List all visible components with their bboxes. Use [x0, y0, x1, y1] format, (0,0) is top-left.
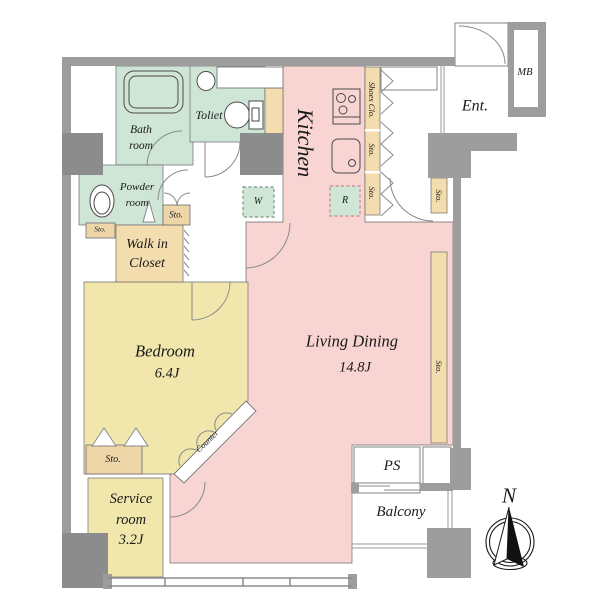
strip-divider	[365, 129, 380, 132]
wall-balcony-top	[420, 483, 453, 491]
bath-room-label: Bath room	[129, 122, 153, 154]
toilet-bowl-fixture	[225, 102, 250, 128]
living-dining-label: Living Dining	[306, 331, 398, 350]
storage-label: Sto.	[367, 144, 377, 157]
bedroom-label: Bedroom	[135, 341, 195, 360]
wall-entrance-step-2	[428, 151, 471, 178]
strip-divider	[365, 171, 380, 174]
shoes-closet-label: Shoes Clo.	[367, 82, 377, 118]
living-door-arc-east	[390, 178, 433, 221]
toilet-side-closet-strip	[265, 88, 283, 135]
compass-needle-light	[494, 507, 509, 565]
compass-needle-dark	[507, 507, 524, 567]
meter-box-label: MB	[517, 67, 532, 79]
pillar-left	[62, 133, 103, 175]
balcony-sliding-door	[352, 483, 420, 493]
compass	[486, 507, 534, 570]
storage-accordion	[381, 172, 393, 216]
service-room-label: Service room 3.2J	[110, 489, 153, 551]
floor-plan: Bath room Toliet Kitchen Shoes Clo. Sto.…	[0, 0, 600, 600]
storage-label: Sto.	[105, 454, 120, 466]
storage-label: Sto.	[434, 361, 444, 374]
powder-sink-fixture	[90, 185, 114, 217]
entrance-door-box	[455, 23, 508, 66]
storage-label: Sto.	[169, 210, 183, 221]
wall-entrance-step	[428, 133, 517, 151]
toilet-sink-fixture	[197, 72, 215, 91]
storage-label: Sto.	[434, 190, 444, 203]
washer-label: W	[254, 196, 262, 208]
living-storage-strip	[431, 252, 447, 443]
pipe-space-box-2	[423, 447, 451, 486]
bath-room-floor	[116, 66, 193, 165]
hall-cabinet	[381, 67, 437, 90]
refrigerator-label: R	[342, 195, 348, 207]
north-label: N	[502, 484, 516, 509]
bedroom-area-label: 6.4J	[155, 365, 180, 382]
wall-top	[62, 57, 455, 66]
window-band	[107, 578, 352, 586]
wall-balcony-block	[427, 528, 471, 578]
pillar-center	[240, 133, 283, 175]
floor-plan-drawing	[0, 0, 600, 600]
walk-in-closet-hatch	[184, 230, 189, 276]
entrance-label: Ent.	[462, 98, 488, 117]
walk-in-closet-label: Walk in Closet	[126, 236, 168, 274]
wall-right	[453, 178, 461, 448]
toilet-tank-fixture	[249, 101, 263, 129]
living-dining-area-label: 14.8J	[339, 359, 371, 376]
powder-room-label: Powder room	[120, 180, 154, 212]
kitchen-label: Kitchen	[292, 109, 318, 177]
storage-label: Sto.	[367, 187, 377, 200]
storage-label: Sto.	[94, 226, 105, 235]
toilet-room-label: Toliet	[196, 108, 223, 122]
storage-double-door-arcs	[164, 193, 190, 206]
pipe-space-label: PS	[384, 458, 401, 476]
toilet-door-arc	[205, 142, 240, 177]
pillar-bottom-left	[62, 533, 108, 588]
storage-accordion	[381, 122, 393, 166]
entrance-step-lines	[441, 66, 444, 133]
balcony-label: Balcony	[376, 504, 425, 522]
toilet-cabinet	[217, 67, 283, 88]
wall-pipe-space	[450, 448, 471, 490]
